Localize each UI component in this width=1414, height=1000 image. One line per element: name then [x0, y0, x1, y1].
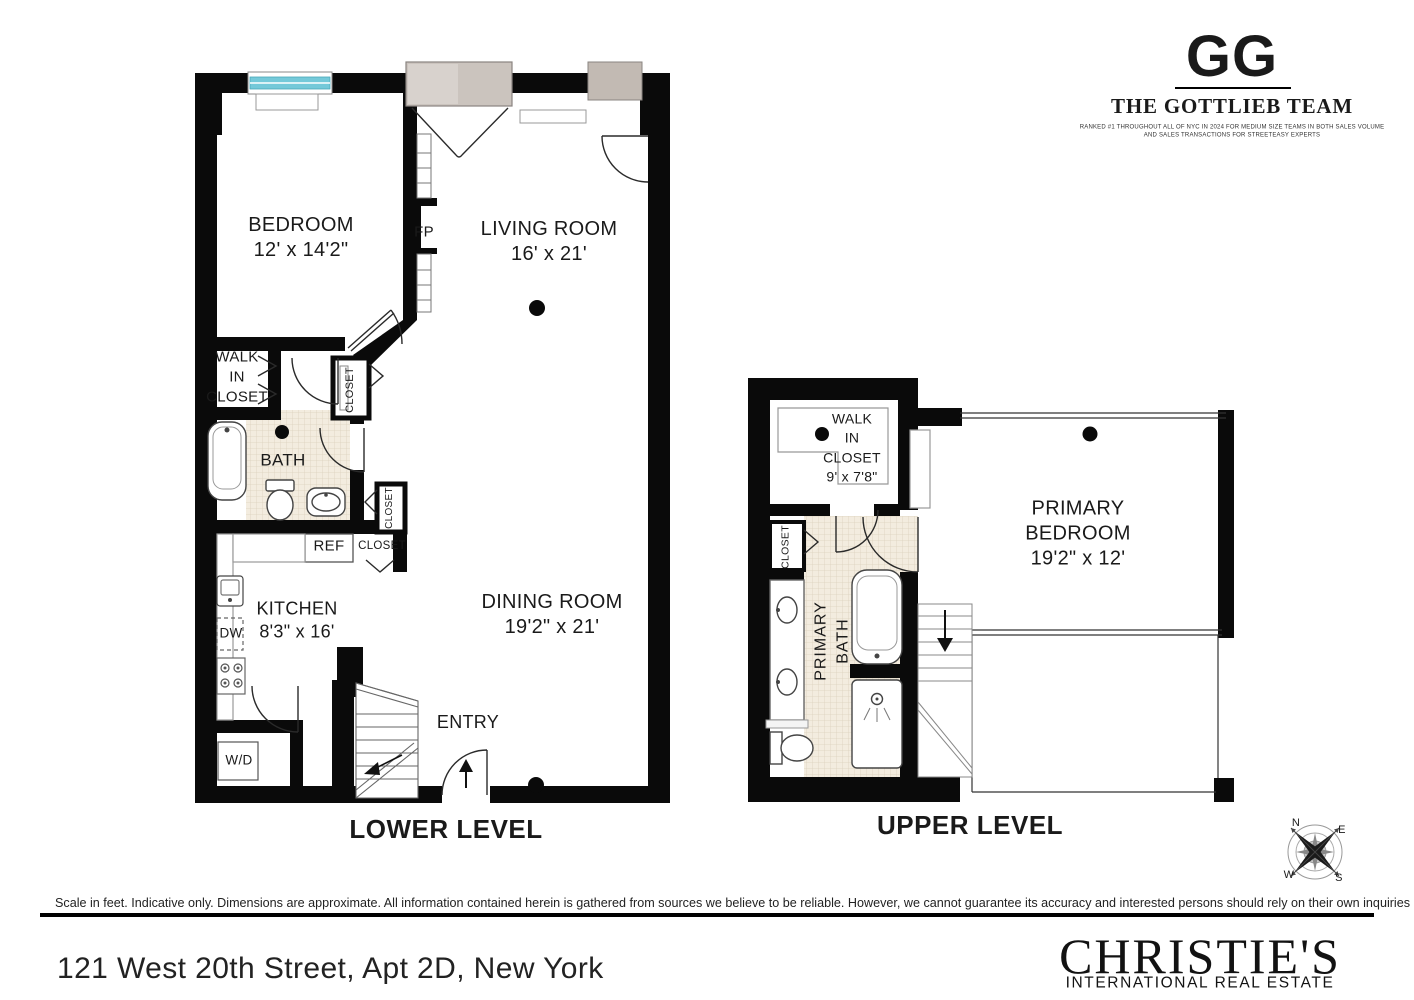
closet-label-vertical-1: CLOSET — [344, 367, 358, 413]
upper-level-title: UPPER LEVEL — [877, 809, 1063, 842]
floorplan-sheet: BEDROOM 12' x 14'2" LIVING ROOM 16' x 21… — [0, 0, 1414, 1000]
primary-bedroom-label: PRIMARY BEDROOM 19'2" x 12' — [1025, 497, 1130, 572]
team-tagline-line2: AND SALES TRANSACTIONS FOR STREETEASY EX… — [1144, 132, 1320, 140]
range — [217, 658, 245, 694]
walk-in-closet-label-upper: WALK IN CLOSET 9' x 7'8" — [823, 409, 881, 486]
property-address: 121 West 20th Street, Apt 2D, New York — [57, 952, 604, 986]
toilet-tank — [770, 732, 782, 764]
bath-label: BATH — [260, 449, 305, 470]
compass-south-label: S — [1335, 872, 1343, 886]
entry-label: ENTRY — [437, 711, 499, 734]
refrigerator-label: REF — [314, 538, 345, 557]
compass-north-label: N — [1292, 817, 1300, 831]
dining-room-label: DINING ROOM 19'2" x 21' — [481, 590, 622, 640]
logo-divider — [1175, 87, 1291, 89]
closet-label-upper: CLOSET — [779, 525, 792, 569]
lower-stairs — [356, 683, 418, 798]
washer-dryer-label: W/D — [225, 753, 252, 770]
walk-in-closet-label-lower: WALK IN CLOSET — [206, 347, 268, 406]
upper-level-floorplan — [740, 372, 1245, 812]
living-room-window — [588, 62, 642, 100]
footer-divider — [40, 913, 1374, 917]
bedroom-bottom-wall — [955, 630, 1222, 635]
toilet-bowl — [781, 735, 813, 761]
christies-subtitle: INTERNATIONAL REAL ESTATE — [1066, 973, 1335, 992]
closet-label-horizontal: CLOSET — [358, 539, 406, 553]
entry-arrow — [459, 759, 473, 772]
bedroom-top-wall — [960, 413, 1226, 418]
compass-east-label: E — [1338, 824, 1346, 838]
gg-logo: GG — [1186, 21, 1278, 94]
fireplace-label: FP — [414, 224, 434, 243]
bedroom-label: BEDROOM 12' x 14'2" — [248, 213, 353, 263]
closet-label-vertical-2: CLOSET — [384, 487, 397, 529]
primary-bath-label: PRIMARY BATH — [810, 601, 853, 681]
disclaimer-text: Scale in feet. Indicative only. Dimensio… — [55, 896, 1414, 910]
team-name: THE GOTTLIEB TEAM — [1111, 93, 1353, 119]
team-tagline-line1: RANKED #1 THROUGHOUT ALL OF NYC IN 2024 … — [1080, 124, 1385, 132]
toilet-bowl — [267, 490, 293, 520]
living-room-label: LIVING ROOM 16' x 21' — [481, 217, 618, 267]
entry-door — [442, 750, 487, 795]
dishwasher-label: DW — [219, 626, 242, 643]
upper-stairs — [918, 604, 972, 777]
compass-west-label: W — [1284, 869, 1295, 883]
kitchen-label: KITCHEN 8'3" x 16' — [256, 598, 337, 643]
lower-level-title: LOWER LEVEL — [349, 813, 542, 846]
